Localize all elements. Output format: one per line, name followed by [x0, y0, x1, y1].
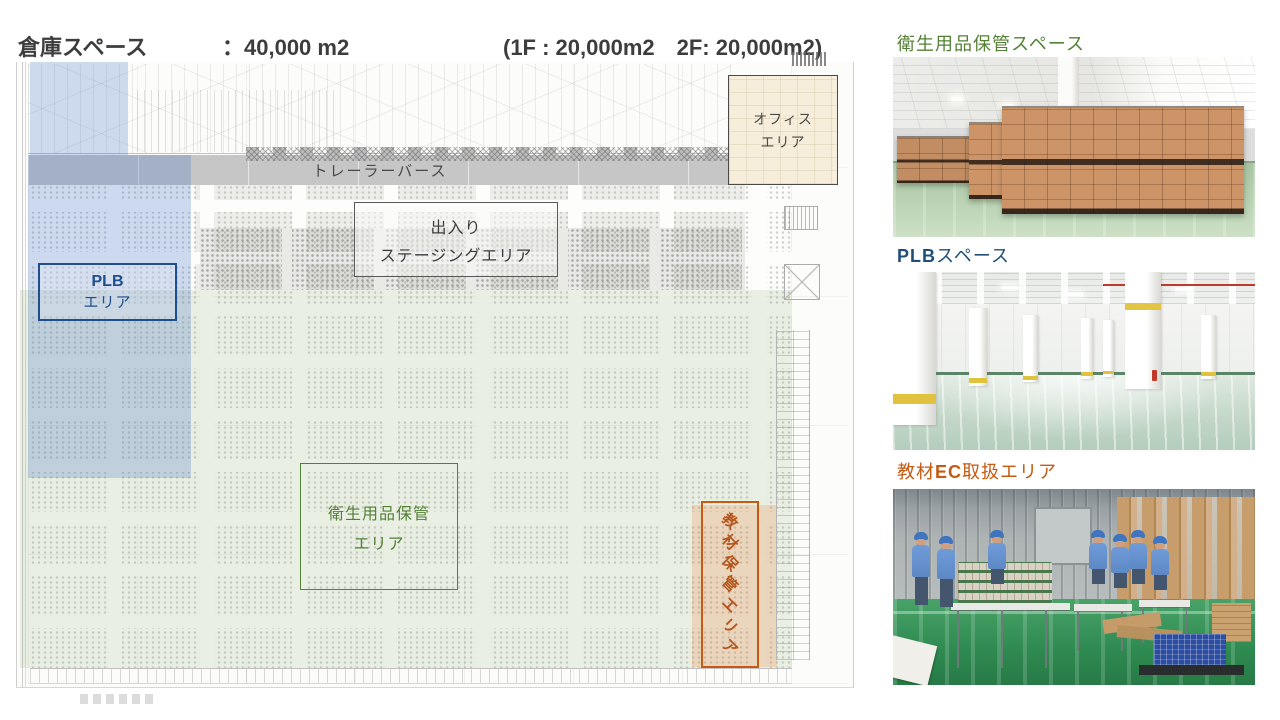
- hygiene-label-line1: 衛生用品保管: [328, 500, 430, 524]
- photo3-window: [1034, 507, 1092, 566]
- plb-label-line1: PLB: [92, 273, 124, 291]
- photo3-worker: [1150, 536, 1170, 590]
- office-label-line2: エリア: [761, 132, 806, 152]
- photo3-table: [1139, 600, 1190, 607]
- photo2-fire-extinguisher: [1152, 370, 1157, 381]
- caption-materials-pre: 教材: [897, 462, 935, 482]
- stairwell: [784, 206, 818, 230]
- photo2-near-pillar: [893, 272, 936, 425]
- office-label-line1: オフィス: [753, 109, 813, 129]
- photo3-table: [1074, 604, 1132, 611]
- caption-plb-rest: スペース: [936, 246, 1010, 266]
- photo3-worker: [936, 536, 956, 607]
- photo2-light: [1002, 286, 1018, 289]
- photo3-worker: [987, 530, 1007, 584]
- photo2-pillar: [1023, 315, 1037, 383]
- hygiene-label-line2: エリア: [353, 530, 404, 554]
- photo3-blue-crate: [1154, 634, 1226, 665]
- plb-zone-tint-upper: [30, 62, 128, 155]
- slide: 倉庫スペース ：40,000 m2 (1F : 20,000m2 2F: 20,…: [0, 0, 1280, 720]
- materials-area-box: 教材保管エリア: [701, 501, 759, 668]
- photo3-table: [951, 603, 1070, 610]
- photo2-pillar: [1103, 320, 1114, 377]
- photo1-box-stack-far: [897, 136, 973, 183]
- staging-label-line1: 出入り: [430, 214, 481, 238]
- elevator-shaft: [784, 264, 820, 300]
- office-area-box: オフィス エリア: [728, 75, 838, 185]
- cad-detail-mark: [792, 52, 828, 66]
- caption-plb-space: PLBスペース: [897, 242, 1010, 268]
- photo1-light: [951, 97, 963, 101]
- plb-area-box: PLB エリア: [38, 263, 177, 321]
- photo3-worker: [911, 532, 931, 605]
- caption-plb-strong: PLB: [897, 246, 936, 266]
- warehouse-space-floors: (1F : 20,000m2 2F: 20,000m2): [503, 30, 822, 62]
- photo2-pillar: [1081, 318, 1093, 379]
- photo2-floor: [893, 375, 1255, 450]
- caption-materials-ec: 教材EC取扱エリア: [897, 458, 1057, 484]
- photo3-worker: [1088, 530, 1108, 584]
- photo2-light: [1067, 293, 1083, 296]
- warehouse-space-label: 倉庫スペース: [18, 30, 147, 62]
- photo2-ceiling: [893, 272, 1255, 304]
- plb-label-line2: エリア: [83, 291, 131, 312]
- caption-hygiene-storage: 衛生用品保管スペース: [897, 30, 1085, 56]
- hygiene-area-box: 衛生用品保管 エリア: [300, 463, 458, 590]
- photo2-light: [1175, 288, 1191, 291]
- photo3-pallet: [1139, 665, 1244, 675]
- warehouse-space-value: ：40,000 m2: [222, 30, 349, 62]
- photo2-pillar: [969, 308, 987, 386]
- photo3-worker: [1128, 530, 1148, 584]
- photo3-worker: [1110, 534, 1130, 588]
- trailer-berth-label: トレーラーバース: [250, 160, 510, 181]
- photo3-floor-stripe: [893, 611, 1255, 614]
- side-corridor-racks: [776, 330, 810, 660]
- caption-materials-strong: EC: [935, 462, 962, 482]
- staging-label-line2: ステージングエリア: [380, 242, 533, 266]
- materials-label: 教材保管エリア: [722, 511, 737, 658]
- roof-truss-area: [28, 64, 732, 154]
- photo1-box-stack-main: [1002, 106, 1245, 214]
- staging-area-box: 出入り ステージングエリア: [354, 202, 558, 277]
- photo-hygiene-storage: [893, 57, 1255, 237]
- bottom-wall-hatch: [30, 668, 792, 684]
- roof-truss-detail: [137, 90, 335, 152]
- photo2-pillar: [1201, 315, 1216, 379]
- cad-title-marks: [80, 694, 156, 704]
- caption-materials-rest: 取扱エリア: [962, 462, 1057, 482]
- photo-plb-space: [893, 272, 1255, 450]
- dock-door-row: [246, 147, 732, 161]
- photo-materials-ec: [893, 489, 1255, 685]
